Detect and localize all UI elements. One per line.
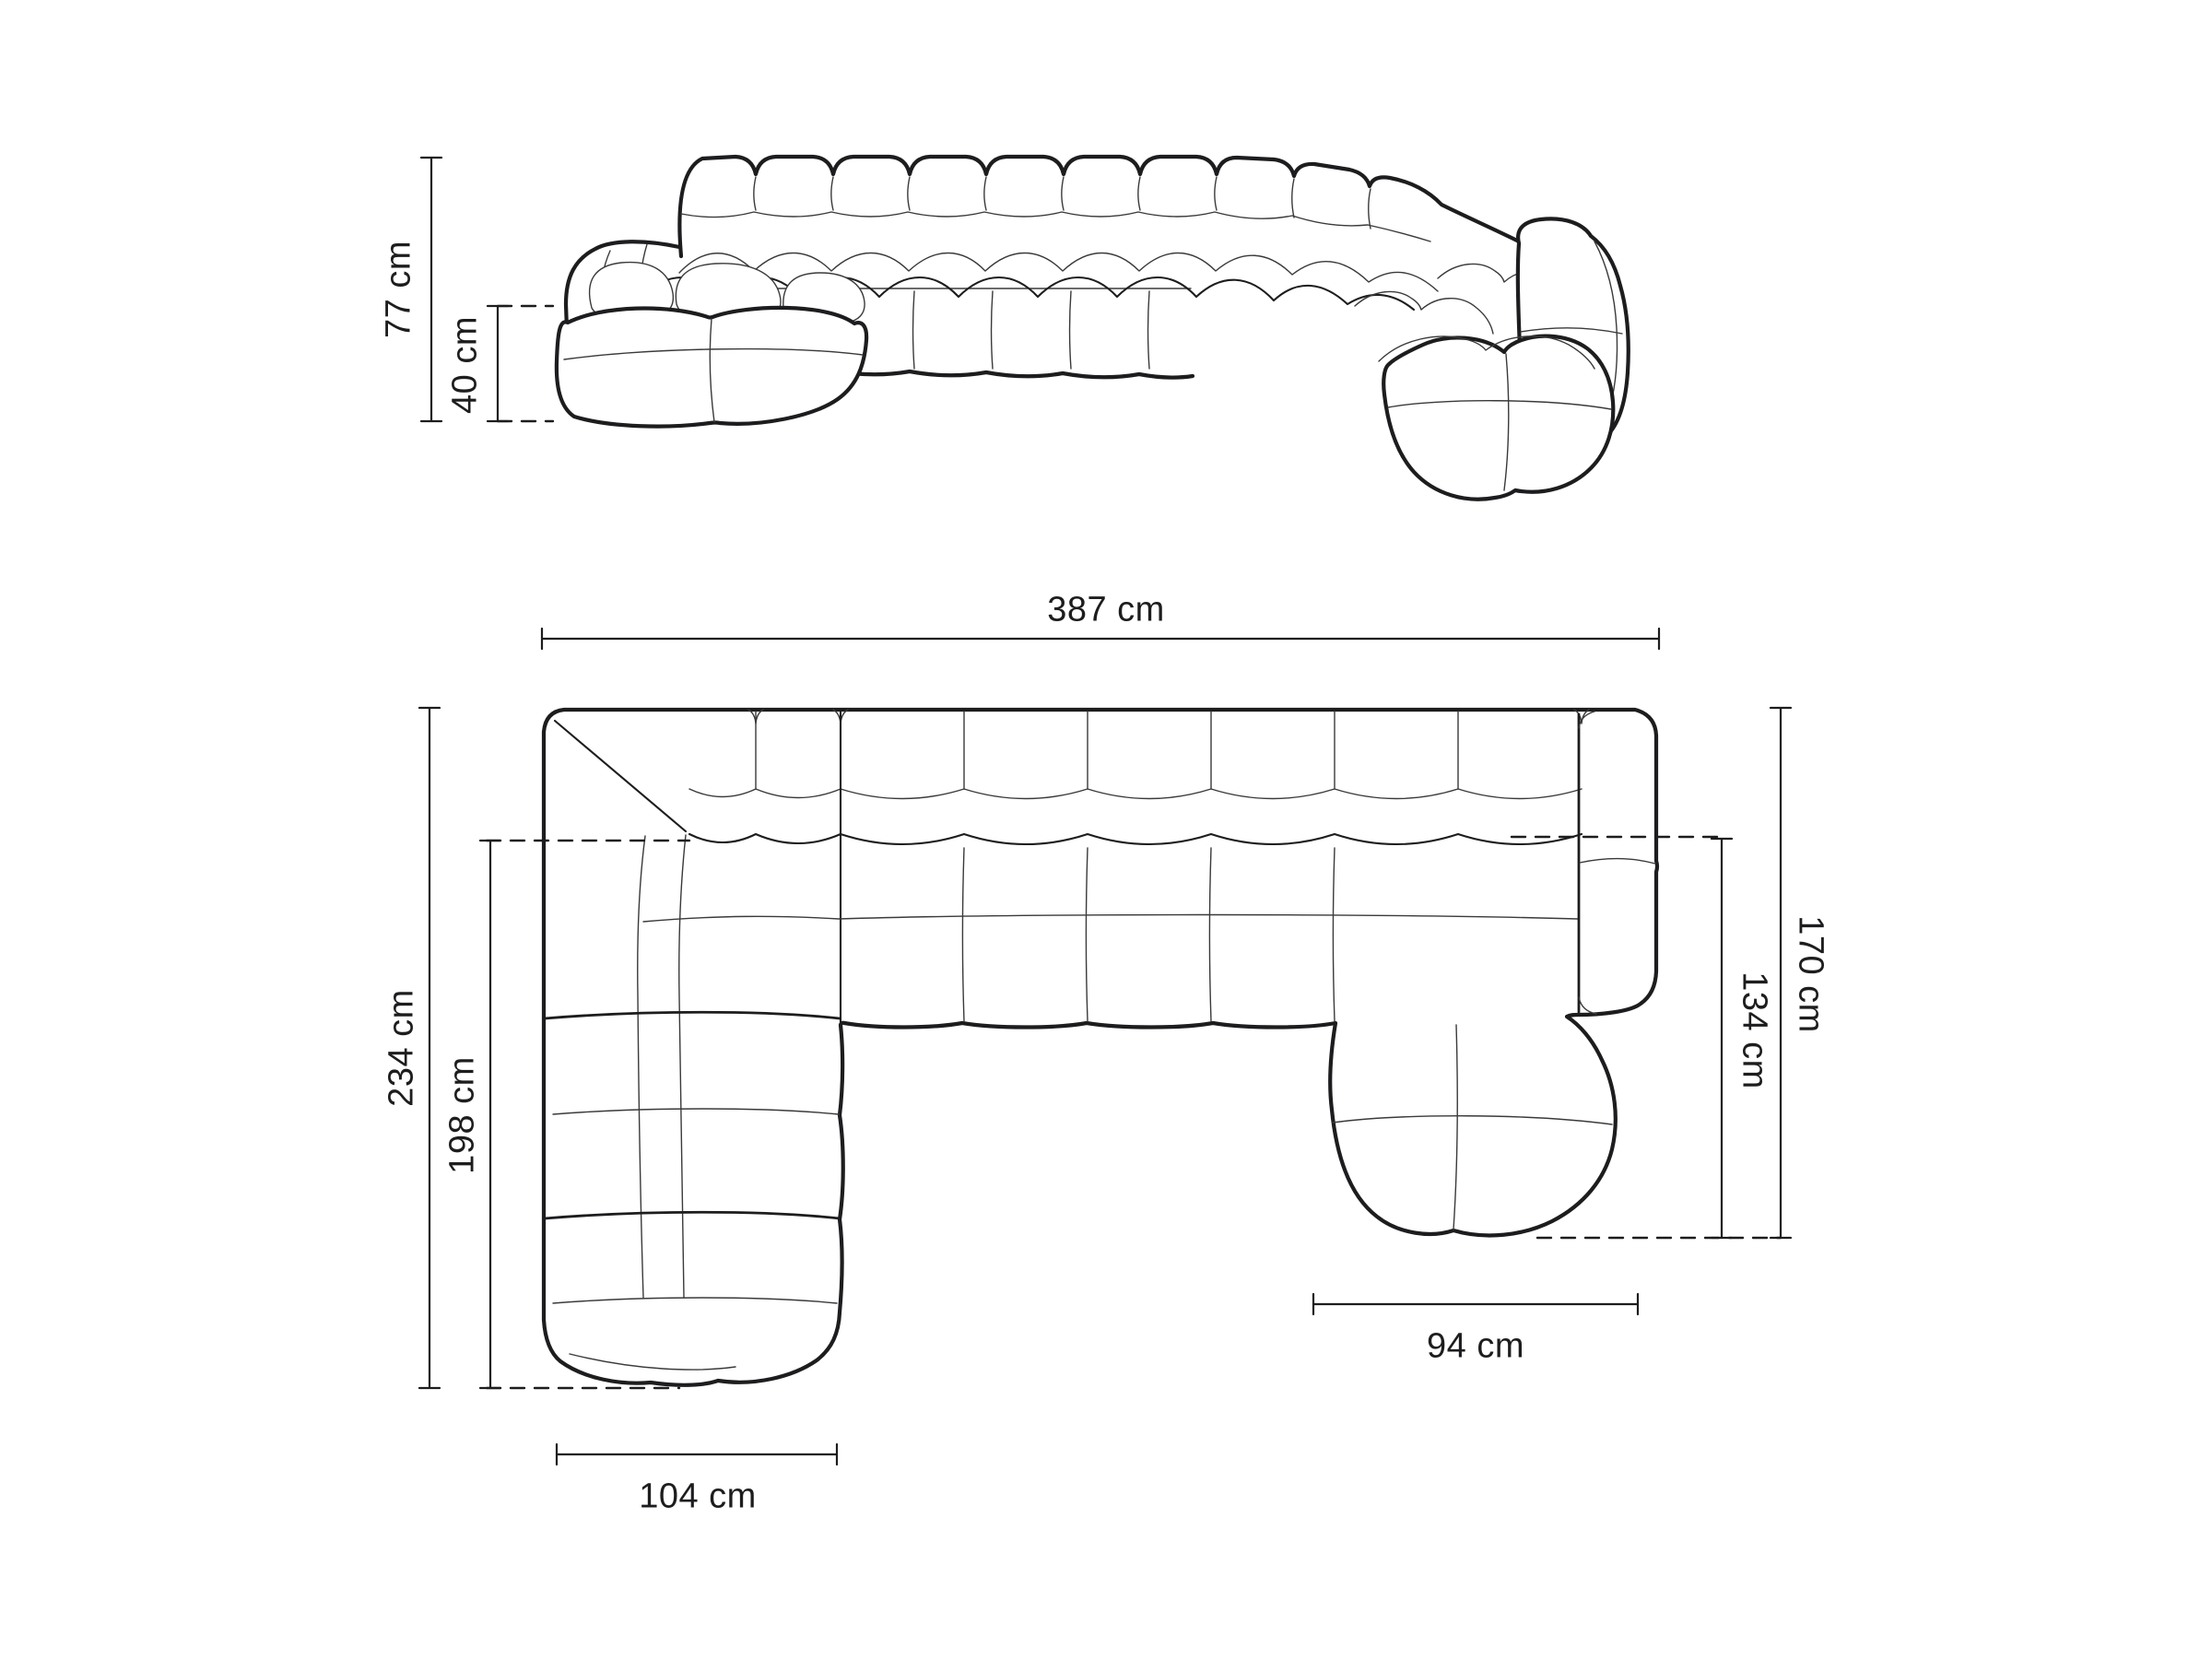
dimension-label-left-depth: 234 cm: [382, 989, 422, 1107]
sofa-front-view: [557, 157, 1629, 500]
dimension-line-left-chaise-width: [557, 1444, 837, 1465]
dimension-line-right-chaise-width: [1313, 1294, 1638, 1314]
dimension-line-left-chaise-length: [480, 841, 500, 1388]
dimension-label-overall-width: 387 cm: [1047, 591, 1165, 630]
dimension-label-right-chaise-length: 134 cm: [1735, 971, 1774, 1089]
dimension-label-overall-height: 77 cm: [380, 241, 419, 338]
dimension-label-right-chaise-width: 94 cm: [1427, 1327, 1524, 1367]
dimension-line-overall-width: [542, 629, 1659, 649]
dimension-label-seat-height: 40 cm: [446, 316, 486, 414]
dimension-line-right-chaise-length: [1712, 839, 1732, 1238]
sofa-dimension-diagram: 77 cm 40 cm 387 cm 234 cm 198 cm 170 cm …: [0, 0, 2212, 1659]
dimension-label-left-chaise-width: 104 cm: [639, 1477, 757, 1517]
dimension-label-left-chaise-length: 198 cm: [443, 1056, 483, 1174]
dimension-label-right-depth: 170 cm: [1791, 915, 1830, 1033]
dimension-line-left-depth: [419, 708, 440, 1388]
sofa-line-drawing: [0, 0, 2212, 1659]
sofa-top-view: [544, 710, 1657, 1385]
dimension-line-overall-height: [421, 158, 441, 421]
dimension-line-seat-height: [488, 306, 508, 421]
